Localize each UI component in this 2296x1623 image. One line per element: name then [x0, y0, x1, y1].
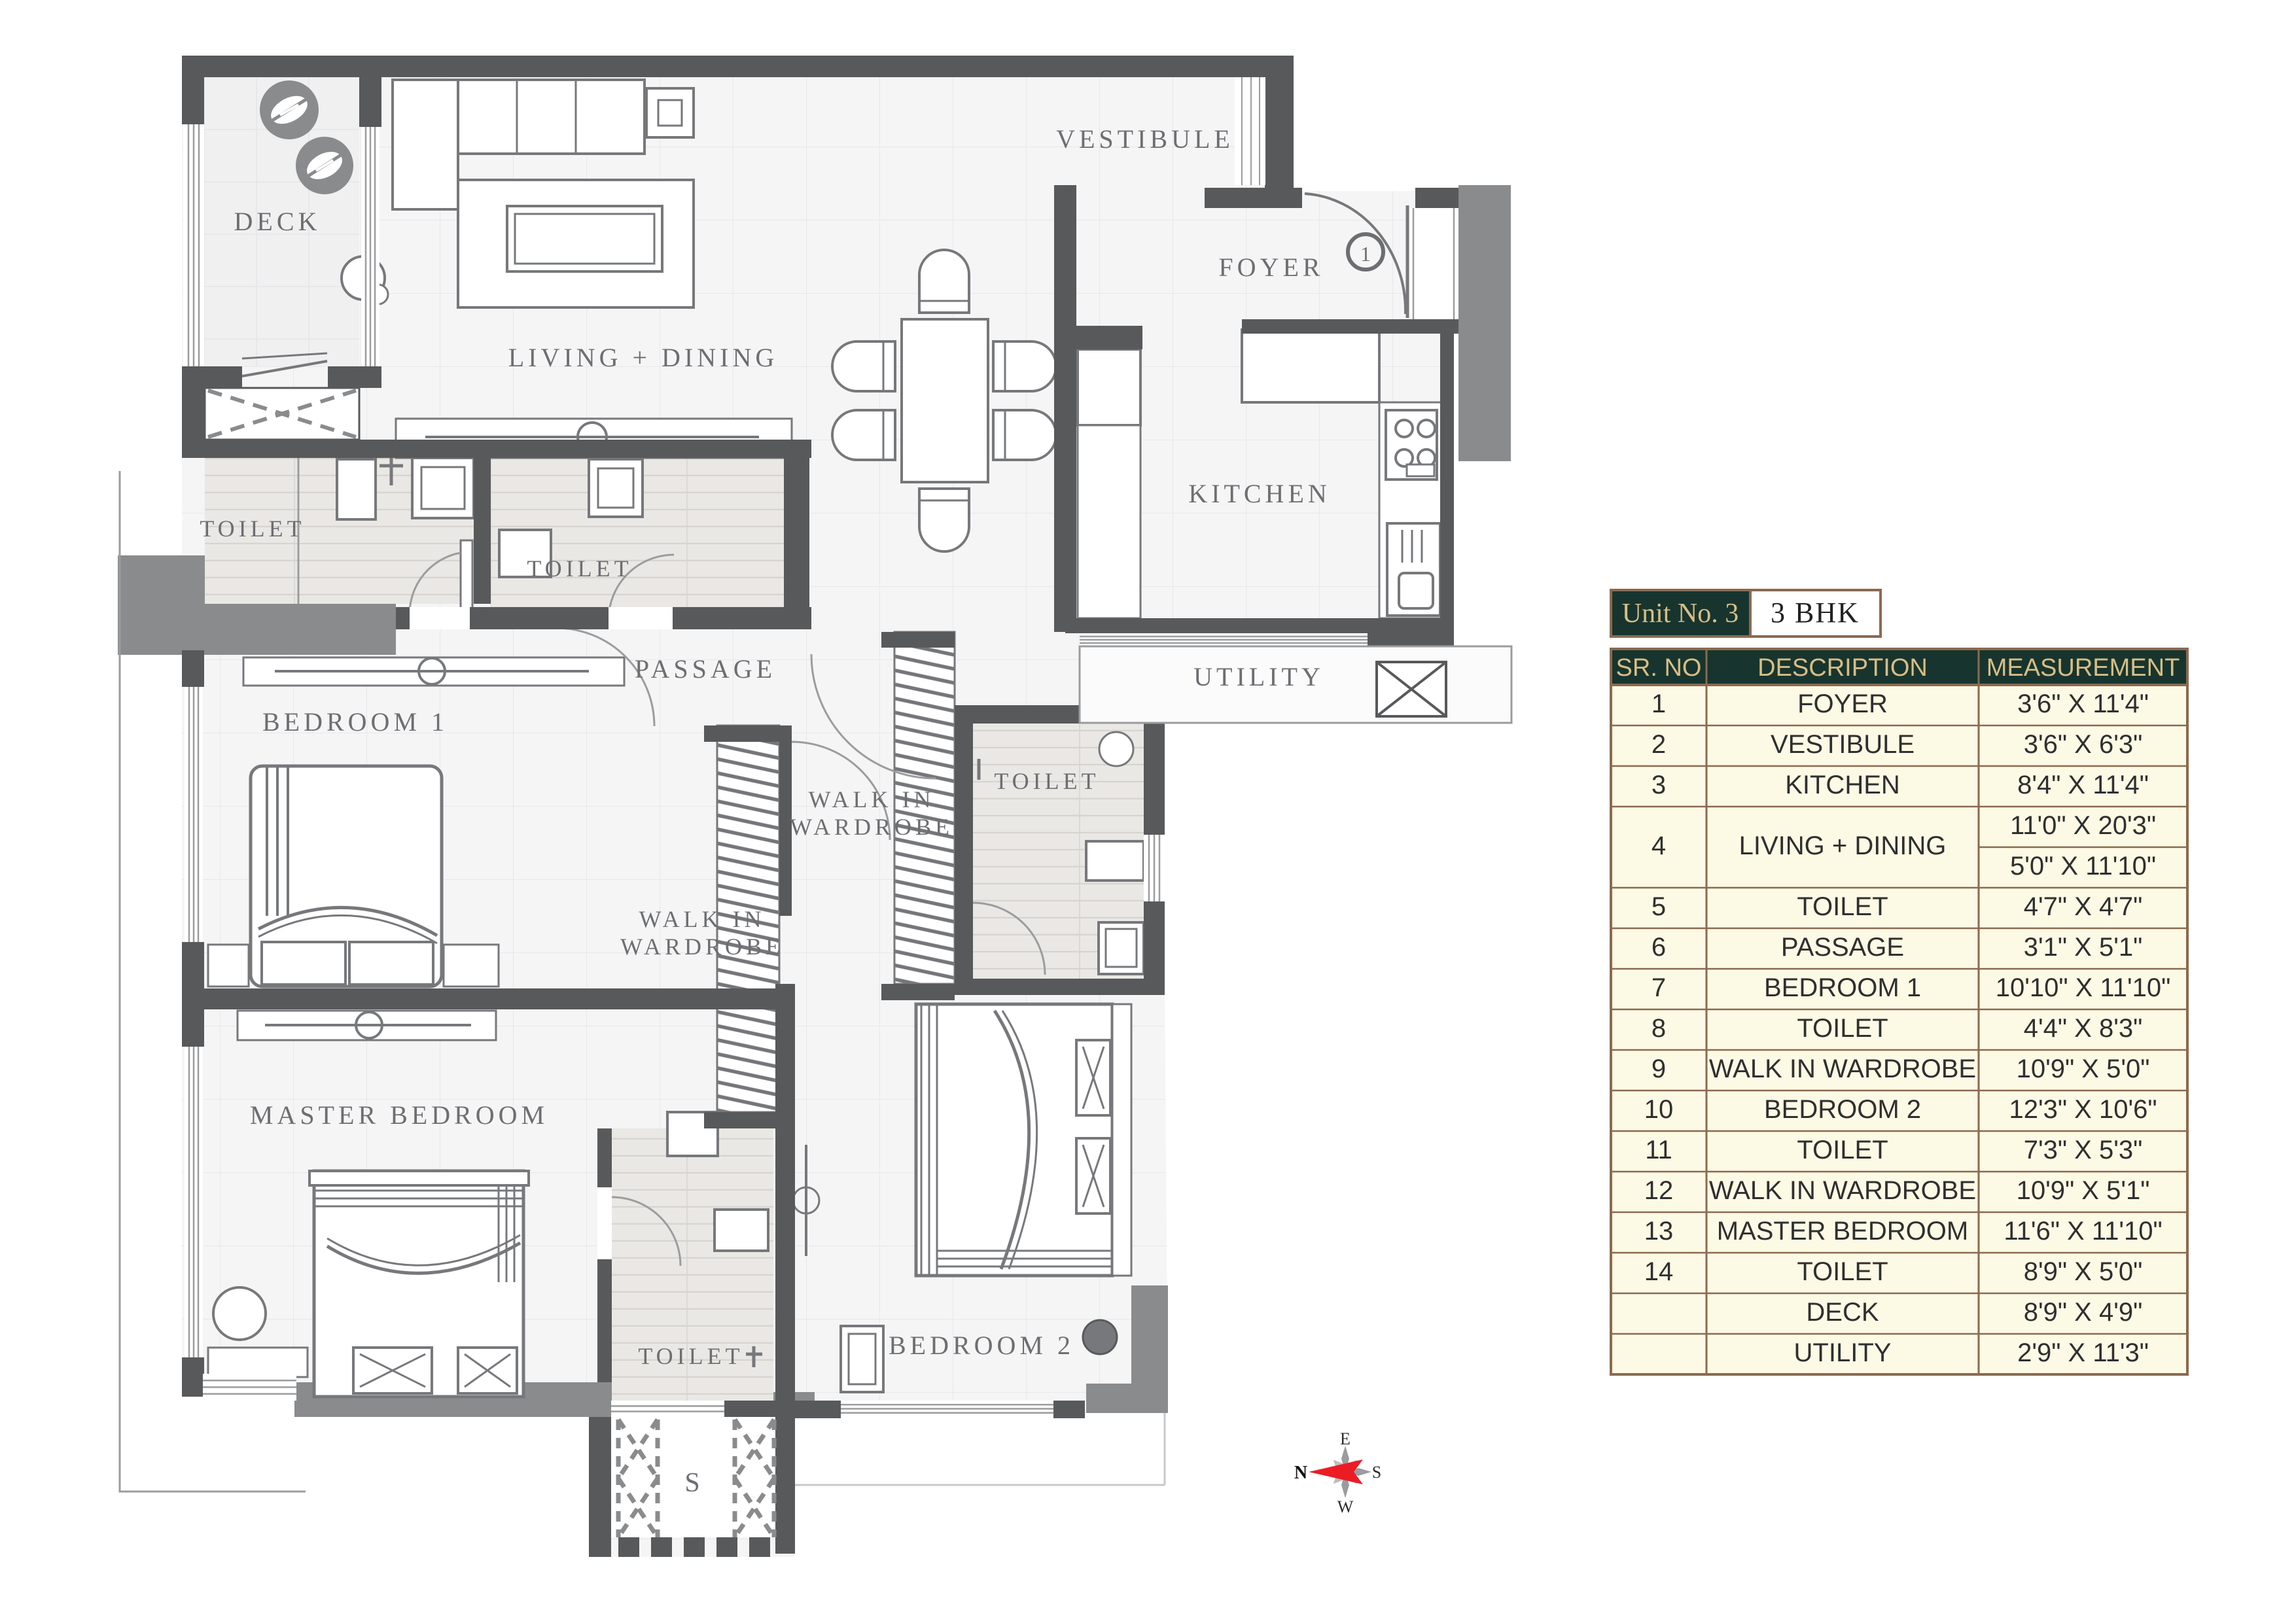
svg-text:BEDROOM 2: BEDROOM 2 [1764, 1095, 1921, 1124]
svg-text:PASSAGE: PASSAGE [1781, 933, 1904, 962]
svg-text:12'3" X 10'6": 12'3" X 10'6" [2009, 1095, 2157, 1124]
svg-text:4: 4 [1651, 831, 1666, 860]
svg-text:3 BHK: 3 BHK [1771, 597, 1860, 629]
svg-text:TOILET: TOILET [1797, 1136, 1888, 1164]
svg-text:3'1" X 5'1": 3'1" X 5'1" [2024, 933, 2143, 962]
svg-text:DESCRIPTION: DESCRIPTION [1757, 654, 1928, 682]
svg-text:MEASUREMENT: MEASUREMENT [1987, 654, 2180, 682]
svg-text:SR. NO: SR. NO [1616, 654, 1702, 682]
svg-text:14: 14 [1644, 1257, 1674, 1286]
svg-text:11: 11 [1645, 1136, 1672, 1164]
svg-text:6: 6 [1651, 933, 1666, 962]
svg-text:3: 3 [1651, 771, 1666, 799]
svg-text:TOILET: TOILET [638, 1343, 743, 1369]
svg-text:VESTIBULE: VESTIBULE [1056, 124, 1234, 154]
svg-text:8'9" X 4'9": 8'9" X 4'9" [2024, 1298, 2143, 1327]
svg-text:2'9" X 11'3": 2'9" X 11'3" [2017, 1338, 2149, 1367]
svg-text:KITCHEN: KITCHEN [1188, 479, 1331, 508]
svg-text:FOYER: FOYER [1797, 689, 1888, 718]
svg-text:11'6" X 11'10": 11'6" X 11'10" [2004, 1217, 2162, 1246]
svg-text:4'7" X 4'7": 4'7" X 4'7" [2024, 892, 2143, 921]
svg-text:DECK: DECK [234, 207, 321, 236]
svg-text:WALK IN: WALK IN [809, 786, 935, 812]
svg-text:LIVING + DINING: LIVING + DINING [508, 343, 778, 372]
svg-text:7: 7 [1651, 973, 1666, 1002]
svg-text:MASTER BEDROOM: MASTER BEDROOM [1717, 1217, 1968, 1246]
svg-text:3'6" X 6'3": 3'6" X 6'3" [2024, 730, 2143, 759]
svg-text:9: 9 [1651, 1055, 1666, 1083]
svg-text:13: 13 [1644, 1217, 1674, 1246]
svg-text:12: 12 [1644, 1176, 1674, 1205]
svg-text:WALK IN WARDROBE: WALK IN WARDROBE [1709, 1176, 1976, 1205]
svg-text:TOILET: TOILET [1797, 1257, 1888, 1286]
svg-text:PASSAGE: PASSAGE [635, 654, 776, 684]
svg-text:Unit No. 3: Unit No. 3 [1622, 599, 1739, 629]
svg-text:S: S [684, 1468, 699, 1498]
svg-text:10: 10 [1644, 1095, 1674, 1124]
svg-text:BEDROOM 1: BEDROOM 1 [1764, 973, 1921, 1002]
svg-text:10'9" X 5'1": 10'9" X 5'1" [2017, 1176, 2150, 1205]
svg-text:8: 8 [1651, 1014, 1666, 1043]
svg-text:N: N [1294, 1463, 1307, 1483]
svg-text:7'3" X 5'3": 7'3" X 5'3" [2024, 1136, 2143, 1164]
svg-text:10'10" X 11'10": 10'10" X 11'10" [1996, 973, 2171, 1002]
svg-text:5'0" X 11'10": 5'0" X 11'10" [2010, 852, 2156, 881]
svg-text:3'6" X 11'4": 3'6" X 11'4" [2017, 689, 2149, 718]
svg-text:2: 2 [1651, 730, 1666, 759]
svg-text:WARDROBE: WARDROBE [620, 934, 784, 960]
svg-text:S: S [1372, 1463, 1381, 1482]
svg-text:8'4" X 11'4": 8'4" X 11'4" [2017, 771, 2149, 799]
svg-text:4'4" X 8'3": 4'4" X 8'3" [2024, 1014, 2143, 1043]
svg-text:W: W [1337, 1497, 1354, 1516]
svg-text:TOILET: TOILET [994, 768, 1099, 794]
svg-text:1: 1 [1360, 242, 1371, 266]
svg-text:WALK IN: WALK IN [639, 906, 766, 932]
svg-text:E: E [1340, 1429, 1351, 1448]
svg-text:FOYER: FOYER [1218, 253, 1324, 282]
svg-text:KITCHEN: KITCHEN [1785, 771, 1900, 799]
svg-text:10'9" X 5'0": 10'9" X 5'0" [2017, 1055, 2150, 1083]
svg-text:DECK: DECK [1806, 1298, 1879, 1327]
svg-text:BEDROOM 1: BEDROOM 1 [262, 707, 448, 737]
svg-text:BEDROOM 2: BEDROOM 2 [889, 1331, 1074, 1360]
svg-text:TOILET: TOILET [1797, 1014, 1888, 1043]
svg-text:8'9" X 5'0": 8'9" X 5'0" [2024, 1257, 2143, 1286]
svg-text:VESTIBULE: VESTIBULE [1771, 730, 1915, 759]
svg-text:5: 5 [1651, 892, 1666, 921]
svg-text:UTILITY: UTILITY [1794, 1338, 1892, 1367]
svg-text:UTILITY: UTILITY [1193, 662, 1324, 691]
svg-text:TOILET: TOILET [1797, 892, 1888, 921]
svg-text:TOILET: TOILET [527, 555, 632, 582]
svg-text:WARDROBE: WARDROBE [790, 814, 953, 840]
svg-text:LIVING + DINING: LIVING + DINING [1739, 831, 1947, 860]
svg-text:TOILET: TOILET [200, 515, 305, 542]
svg-text:WALK IN WARDROBE: WALK IN WARDROBE [1709, 1055, 1976, 1083]
svg-text:1: 1 [1651, 689, 1666, 718]
svg-text:MASTER BEDROOM: MASTER BEDROOM [250, 1100, 548, 1130]
svg-text:11'0" X 20'3": 11'0" X 20'3" [2010, 811, 2156, 840]
